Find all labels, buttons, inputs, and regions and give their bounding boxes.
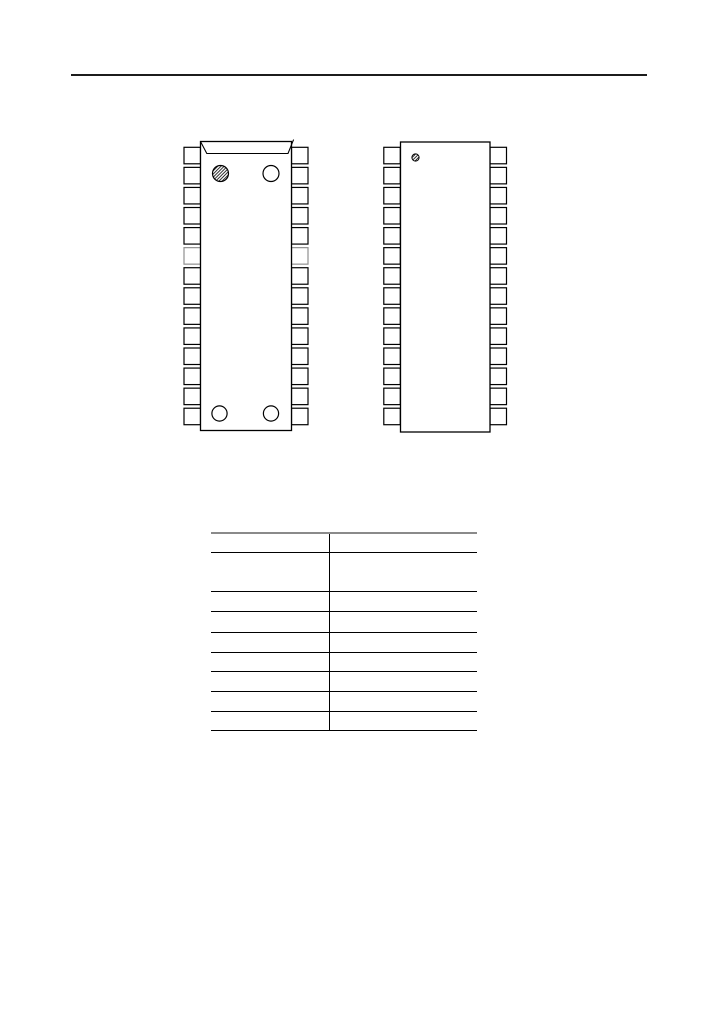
pin xyxy=(384,408,401,425)
table-header-row xyxy=(211,534,478,554)
table-cell xyxy=(330,712,478,731)
pin xyxy=(490,208,507,225)
pin xyxy=(490,348,507,365)
pin xyxy=(384,187,401,204)
table-cell xyxy=(211,633,330,652)
pin xyxy=(384,328,401,345)
pin-greyed xyxy=(184,248,201,265)
table-cell xyxy=(211,534,330,553)
dip-package-right xyxy=(384,142,507,432)
pin xyxy=(184,308,201,325)
pin xyxy=(384,308,401,325)
pin xyxy=(292,408,309,425)
pin xyxy=(490,328,507,345)
pin xyxy=(184,348,201,365)
pin xyxy=(384,167,401,184)
table-cell xyxy=(330,553,478,591)
table-row xyxy=(211,692,478,712)
pin1-indicator-hatched-circle xyxy=(213,166,229,182)
pin xyxy=(292,348,309,365)
pin xyxy=(184,147,201,164)
table-cell xyxy=(330,692,478,711)
table-cell xyxy=(211,672,330,691)
pin xyxy=(184,268,201,285)
pin xyxy=(292,228,309,245)
table-row xyxy=(211,612,478,633)
table-row xyxy=(211,553,478,592)
mold-mark-circle-bottom-right xyxy=(263,406,278,421)
pin xyxy=(384,388,401,405)
pin xyxy=(184,368,201,385)
table-cell xyxy=(211,692,330,711)
table-row xyxy=(211,592,478,612)
table-row xyxy=(211,653,478,673)
table-row xyxy=(211,672,478,692)
pin xyxy=(184,208,201,225)
package-body xyxy=(201,142,292,431)
pin xyxy=(490,167,507,184)
pin xyxy=(184,388,201,405)
pin xyxy=(292,187,309,204)
package-body xyxy=(401,142,491,432)
pin xyxy=(184,288,201,305)
document-page xyxy=(0,0,717,1013)
pin xyxy=(384,208,401,225)
table-cell xyxy=(330,534,478,553)
pin xyxy=(490,288,507,305)
dip-package-left xyxy=(184,140,308,431)
pin xyxy=(292,208,309,225)
pin xyxy=(490,388,507,405)
table-cell xyxy=(211,553,330,591)
table-cell xyxy=(211,612,330,632)
pin-assignment-table xyxy=(211,532,478,732)
table-cell xyxy=(330,612,478,632)
pin xyxy=(292,147,309,164)
package-diagrams-figure xyxy=(0,0,717,1013)
pin xyxy=(490,408,507,425)
pin xyxy=(384,348,401,365)
pin xyxy=(384,268,401,285)
mold-mark-circle-top-right xyxy=(263,166,279,182)
pin xyxy=(490,308,507,325)
pin xyxy=(384,228,401,245)
table-cell xyxy=(330,672,478,691)
table-cell xyxy=(330,653,478,672)
pin xyxy=(490,187,507,204)
pin xyxy=(292,167,309,184)
pin xyxy=(384,288,401,305)
pin xyxy=(292,288,309,305)
mold-mark-circle-bottom-left xyxy=(212,406,227,421)
table-cell xyxy=(330,633,478,652)
table-row xyxy=(211,712,478,732)
pin xyxy=(292,268,309,285)
pin xyxy=(184,228,201,245)
table-cell xyxy=(211,592,330,611)
pin xyxy=(490,228,507,245)
table-cell xyxy=(211,712,330,731)
pin xyxy=(184,167,201,184)
pin xyxy=(292,308,309,325)
pin-greyed xyxy=(292,248,309,265)
pin xyxy=(490,268,507,285)
pin xyxy=(184,328,201,345)
pin xyxy=(490,368,507,385)
pin xyxy=(292,368,309,385)
pin xyxy=(184,408,201,425)
pin xyxy=(292,328,309,345)
pin xyxy=(184,187,201,204)
table-row xyxy=(211,633,478,653)
pin1-indicator-small-hatched-circle xyxy=(412,154,419,161)
pin xyxy=(292,388,309,405)
table-cell xyxy=(211,653,330,672)
pin xyxy=(384,368,401,385)
table-cell xyxy=(330,592,478,611)
pin xyxy=(384,147,401,164)
pin xyxy=(490,248,507,265)
pin xyxy=(490,147,507,164)
pin xyxy=(384,248,401,265)
